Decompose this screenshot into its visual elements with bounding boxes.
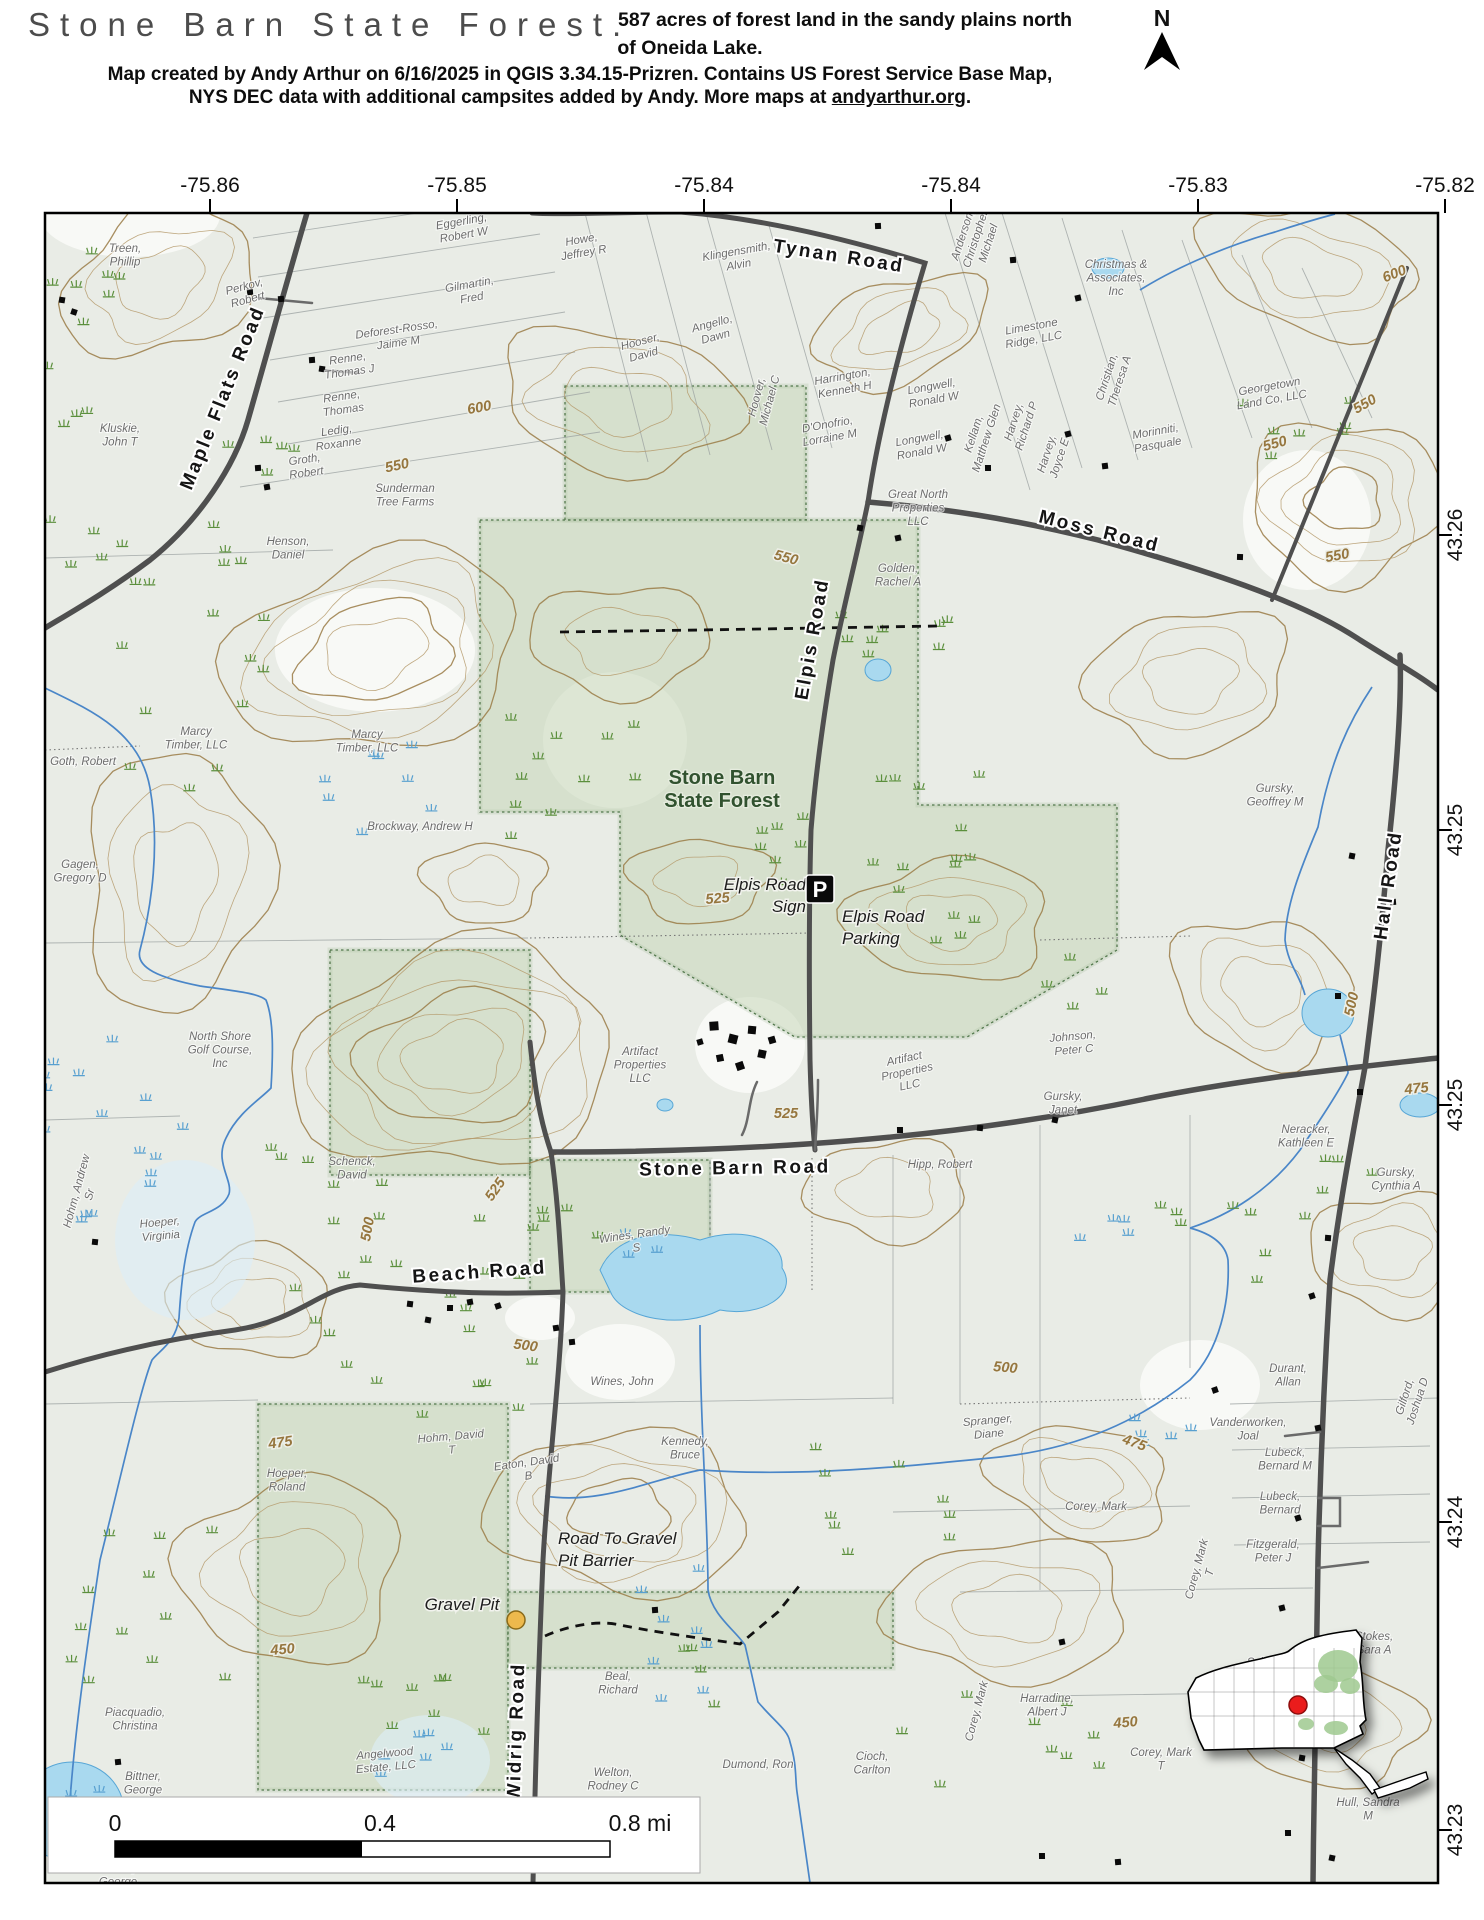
owner-label: SundermanTree Farms <box>375 483 434 509</box>
owner-label-line: Timber, LLC <box>165 740 228 752</box>
owner-label-line: Hoeper, <box>267 1468 307 1480</box>
barrier-label: Pit Barrier <box>558 1551 635 1570</box>
owner-label: AngelwoodEstate, LLC <box>354 1745 417 1776</box>
owner-label: Kluskie,John T <box>100 423 140 449</box>
owner-label-line: Welton, <box>594 1767 633 1779</box>
contour-label: 500 <box>512 1336 538 1355</box>
marsh-tuft <box>12 1788 24 1795</box>
owner-label-line: Inc <box>1108 286 1124 298</box>
inset-forest-patch <box>1314 1675 1338 1693</box>
contour-label: 500 <box>993 1359 1019 1377</box>
forest-area <box>330 950 530 1175</box>
building <box>716 1054 724 1062</box>
building <box>1058 1638 1065 1645</box>
owner-label-line: Piacquadio, <box>105 1707 165 1719</box>
forest-name: Stone BarnState Forest <box>664 767 780 812</box>
owner-label: Lubeck,Bernard <box>1260 1491 1302 1517</box>
contour-label: 525 <box>774 1106 799 1122</box>
owner-label-line: Beal, <box>605 1671 631 1683</box>
owner-label-line: Artifact <box>621 1046 659 1058</box>
axis-label-longitude: -75.83 <box>1168 174 1228 197</box>
owner-label-line: Phillip <box>110 257 141 269</box>
owner-label-line: Roland <box>269 1482 306 1494</box>
contour-label: 450 <box>269 1641 296 1659</box>
poi-sign-label: Sign <box>772 897 806 916</box>
owner-label-line: Hipp, Robert <box>908 1159 973 1171</box>
axis-label-longitude: -75.84 <box>674 174 734 197</box>
building <box>1357 1089 1363 1095</box>
owner-label-line: George <box>124 1785 162 1797</box>
marsh-tuft <box>17 392 29 399</box>
building <box>1010 257 1017 264</box>
owner-label-line: Gagen, <box>61 859 99 871</box>
owner-label: Golden,Rachel A <box>875 563 922 589</box>
contour-label: 450 <box>1112 1714 1139 1732</box>
subtitle-line2: of Oneida Lake. <box>420 37 960 60</box>
scale-bar-end: 0.8 mi <box>609 1810 672 1836</box>
owner-label-line: Bittner, <box>125 1771 161 1783</box>
open-field <box>1243 450 1371 590</box>
owner-label: Bittner,George <box>124 1771 162 1797</box>
owner-label-line: Cioch, <box>856 1751 889 1763</box>
owner-label-line: Peter J <box>1255 1553 1292 1565</box>
owner-label: Dumond, Ron <box>723 1759 794 1771</box>
owner-label: Neracker,Kathleen E <box>1278 1124 1335 1150</box>
credit-line1: Map created by Andy Arthur on 6/16/2025 … <box>0 64 1160 86</box>
lake <box>600 1234 786 1320</box>
owner-label-line: Gursky, <box>1377 1167 1416 1179</box>
marsh-tuft-glyph <box>30 1028 42 1035</box>
building <box>1051 1116 1058 1123</box>
owner-label-line: Cynthia A <box>1371 1181 1421 1193</box>
owner-label: Harradine,Albert J <box>1020 1693 1074 1719</box>
poi-parking-label: Parking <box>842 929 900 948</box>
barrier-label: Road To Gravel <box>558 1529 678 1548</box>
scale-bar-mid: 0.4 <box>364 1810 396 1836</box>
building <box>897 1127 903 1133</box>
marsh-tuft <box>30 1028 42 1035</box>
building <box>1039 1853 1045 1859</box>
marsh-tuft-glyph <box>26 343 38 350</box>
owner-label: Groth,Robert <box>287 452 326 482</box>
inset-forest-patch <box>1324 1721 1348 1735</box>
owner-label-line: Christina <box>112 1721 157 1733</box>
marsh-tuft-glyph <box>13 340 25 347</box>
pond <box>865 659 891 681</box>
building <box>1314 1424 1321 1431</box>
building <box>1237 554 1243 560</box>
scale-bar: 00.40.8 mi <box>48 1797 700 1873</box>
owner-label-line: Durant, <box>1269 1363 1307 1375</box>
owner-label-line: Golf Course, <box>188 1045 253 1057</box>
building <box>748 1026 757 1035</box>
owner-label-line: Golden, <box>878 563 918 575</box>
owner-label-line: Vanderworken, <box>1210 1417 1287 1429</box>
map-page: Stone Barn State Forest. 587 acres of fo… <box>0 0 1484 1920</box>
building <box>1328 1854 1335 1861</box>
building <box>59 297 66 304</box>
building <box>278 296 285 303</box>
owner-label-line: Lubeck, <box>1265 1447 1305 1459</box>
owner-label-line: Gregory D <box>53 873 106 885</box>
owner-label-line: Joal <box>1236 1431 1259 1443</box>
building <box>985 465 991 471</box>
owner-label: Hipp, Robert <box>908 1159 973 1171</box>
owner-label-line: Lubeck, <box>1260 1491 1300 1503</box>
building <box>894 534 901 541</box>
owner-label-line: Hull, Sandra <box>1336 1797 1399 1809</box>
building <box>875 223 881 229</box>
scale-bar-filled <box>115 1841 362 1857</box>
open-field <box>565 1324 675 1400</box>
owner-label: Treen,Phillip <box>109 243 141 269</box>
credit-link[interactable]: andyarthur.org <box>832 87 966 108</box>
credit-line2-text: NYS DEC data with additional campsites a… <box>189 87 832 108</box>
owner-label-line: Rachel A <box>875 577 922 589</box>
marsh-tuft <box>13 340 25 347</box>
building <box>264 484 271 491</box>
building <box>1102 463 1109 470</box>
marsh-tuft-glyph <box>12 1788 24 1795</box>
owner-label-line: Gursky, <box>1256 783 1295 795</box>
inset-forest-patch <box>1340 1678 1360 1694</box>
building <box>447 1305 453 1311</box>
owner-label-line: Henson, <box>267 536 310 548</box>
owner-label: Hoeper,Roland <box>267 1468 307 1494</box>
map-canvas: N 60060055055055055055052552552550050050… <box>0 0 1484 1920</box>
marsh-area <box>115 1160 255 1320</box>
owner-label-line: Great North <box>888 489 948 501</box>
owner-label-line: Marcy <box>351 729 384 741</box>
owner-label: Brockway, Andrew H <box>367 821 473 833</box>
forest-name-line: State Forest <box>664 790 780 812</box>
gravel-pit-label: Gravel Pit <box>425 1595 501 1614</box>
owner-label-line: Associates, <box>1086 273 1146 285</box>
owner-label-line: Fitzgerald, <box>1246 1539 1300 1551</box>
owner-label-line: Schenck, <box>328 1156 375 1168</box>
road-label: Stone Barn Road <box>639 1156 831 1180</box>
owner-label: Piacquadio,Christina <box>105 1707 165 1733</box>
map-header: Stone Barn State Forest. 587 acres of fo… <box>0 0 1484 140</box>
owner-label-line: Inc <box>212 1058 228 1070</box>
credit-line2-suffix: . <box>966 87 971 108</box>
owner-label-line: Bernard M <box>1258 1461 1312 1473</box>
forest-name-label: Stone BarnState Forest <box>664 767 780 812</box>
poi-sign-label: Elpis Road <box>724 875 807 894</box>
pond <box>657 1099 673 1111</box>
owner-label: Corey, Mark <box>1065 1501 1128 1513</box>
owner-label-line: Tree Farms <box>376 497 435 509</box>
owner-label: Hoeper,Virginia <box>139 1215 181 1244</box>
owner-label-line: Properties <box>614 1060 667 1072</box>
axis-label-latitude: 43.25 <box>1444 804 1467 857</box>
building <box>709 1021 719 1031</box>
owner-label: Lubeck,Bernard M <box>1258 1447 1312 1473</box>
owner-label-line: Wines, John <box>590 1376 653 1388</box>
axis-label-latitude: 43.25 <box>1444 1079 1467 1132</box>
gravel-pit-marker <box>507 1611 525 1629</box>
axis-label-longitude: -75.82 <box>1415 174 1475 197</box>
building <box>255 465 261 471</box>
owner-label-line: John T <box>101 437 138 449</box>
marsh-tuft-glyph <box>14 1773 26 1780</box>
owner-label-line: Corey, Mark <box>1130 1747 1193 1759</box>
owner-label-line: Christmas & <box>1085 259 1148 271</box>
owner-label-line: Dumond, Ron <box>723 1759 794 1771</box>
axis-label-latitude: 43.24 <box>1444 1495 1467 1548</box>
marsh-tuft <box>14 1773 26 1780</box>
building <box>1335 993 1341 999</box>
owner-label-line: Harradine, <box>1020 1693 1074 1705</box>
building <box>424 1316 431 1323</box>
owner-label-line: Janet <box>1048 1105 1078 1117</box>
owner-label-line: T <box>1157 1761 1165 1773</box>
owner-label-line: Brockway, Andrew H <box>367 821 473 833</box>
owner-label: Johnson,Peter C <box>1048 1029 1098 1059</box>
owner-label-line: Bernard <box>1260 1505 1302 1517</box>
owner-label: Gagen,Gregory D <box>53 859 106 885</box>
building <box>115 1759 122 1766</box>
scale-bar-zero: 0 <box>109 1810 122 1836</box>
building <box>644 194 652 202</box>
credit-line2: NYS DEC data with additional campsites a… <box>0 87 1160 109</box>
owner-label: Gursky,Cynthia A <box>1371 1167 1421 1193</box>
building <box>569 1339 576 1346</box>
owner-label: Goth, Robert <box>50 756 117 768</box>
owner-label-line: David <box>337 1170 367 1182</box>
owner-label-line: Corey, Mark <box>1065 1501 1128 1513</box>
contour-label: 475 <box>1403 1080 1431 1099</box>
owner-label-line: Marcy <box>180 726 213 738</box>
owner-label: Cioch,Carlton <box>853 1751 890 1777</box>
building <box>757 1049 766 1058</box>
axis-label-longitude: -75.85 <box>427 174 487 197</box>
owner-label-line: Albert J <box>1027 1707 1067 1719</box>
owner-label-line: LLC <box>629 1073 651 1085</box>
inset-location-dot <box>1289 1696 1307 1714</box>
marsh-tuft-glyph <box>17 392 29 399</box>
building <box>856 524 863 531</box>
owner-label-line: Treen, <box>109 243 141 255</box>
building <box>532 180 539 187</box>
owner-label-line: Goth, Robert <box>50 756 117 768</box>
parking-icon-glyph: P <box>813 877 828 902</box>
axis-label-longitude: -75.84 <box>921 174 981 197</box>
building <box>407 1301 414 1308</box>
axis-label-longitude: -75.86 <box>180 174 240 197</box>
building <box>92 1239 99 1246</box>
owner-label: Gursky,Janet <box>1044 1091 1083 1117</box>
owner-label-line: Rodney C <box>587 1781 639 1793</box>
owner-label-line: Richard <box>598 1685 638 1697</box>
owner-label-line: Kathleen E <box>1278 1138 1335 1150</box>
building <box>977 1125 984 1132</box>
owner-label-line: North Shore <box>189 1031 251 1043</box>
building <box>1325 1235 1331 1241</box>
owner-label-line: M <box>1363 1811 1373 1823</box>
owner-label-line: Allan <box>1274 1377 1301 1389</box>
poi-parking-label: Elpis Road <box>842 907 925 926</box>
marsh-tuft-glyph <box>21 1072 33 1079</box>
owner-label-line: Geoffrey M <box>1247 797 1304 809</box>
building <box>1115 1859 1122 1866</box>
owner-label-line: Properties <box>892 503 945 515</box>
building <box>467 1299 474 1306</box>
open-field <box>275 588 475 712</box>
subtitle-line1: 587 acres of forest land in the sandy pl… <box>618 9 1118 32</box>
owner-label-line: Daniel <box>272 550 305 562</box>
owner-label-line: Kennedy, <box>661 1436 709 1448</box>
axis-label-latitude: 43.26 <box>1444 509 1467 562</box>
building <box>1285 1830 1291 1836</box>
owner-label-line: Kluskie, <box>100 423 140 435</box>
owner-label-line: Neracker, <box>1281 1124 1330 1136</box>
owner-label-line: Timber, LLC <box>336 743 399 755</box>
marsh-tuft <box>21 1072 33 1079</box>
building <box>652 1607 658 1613</box>
owner-label: Henson,Daniel <box>267 536 310 562</box>
owner-label-line: Gursky, <box>1044 1091 1083 1103</box>
axis-label-latitude: 43.23 <box>1444 1804 1467 1857</box>
inset-forest-patch <box>1298 1718 1314 1730</box>
building <box>309 357 315 363</box>
owner-label-line: Bruce <box>670 1450 700 1462</box>
building <box>1348 852 1355 859</box>
marsh-tuft <box>26 343 38 350</box>
owner-label-line: Carlton <box>853 1765 890 1777</box>
building <box>1299 1755 1306 1762</box>
owner-label: Welton,Rodney C <box>587 1767 639 1793</box>
owner-label: Wines, John <box>590 1376 653 1388</box>
owner-label-line: Sunderman <box>375 483 434 495</box>
building <box>553 1325 560 1332</box>
forest-name-line: Stone Barn <box>669 767 776 789</box>
owner-label-line: LLC <box>907 516 929 528</box>
